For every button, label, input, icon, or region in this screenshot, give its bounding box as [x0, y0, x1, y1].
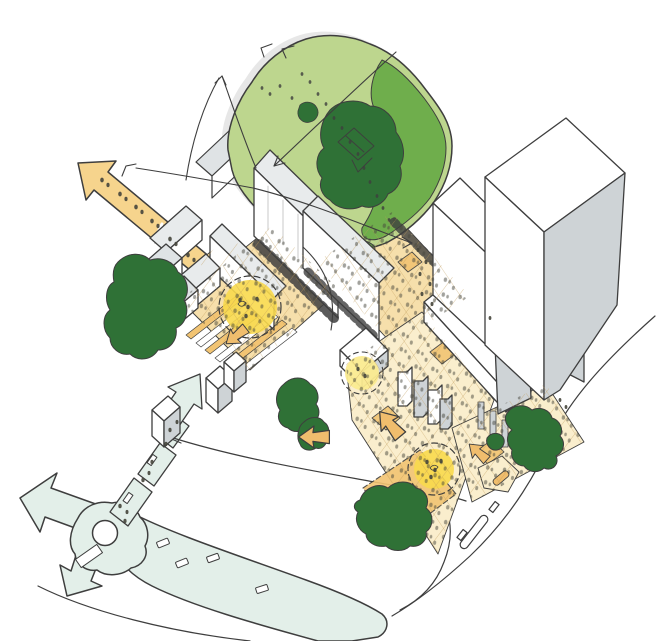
leaf-dot: [349, 140, 352, 144]
person-dot: [100, 178, 104, 183]
person-dot: [123, 519, 126, 523]
roundabout-island: [93, 521, 118, 546]
person-dot: [148, 471, 151, 475]
pedestrian-route: [110, 374, 202, 526]
sketch-root: [20, 32, 655, 641]
person-dot: [118, 192, 122, 197]
person-dot: [429, 282, 432, 286]
person-dot: [431, 302, 434, 306]
leaf-dot: [369, 180, 372, 184]
person-dot: [134, 205, 138, 210]
person-dot: [126, 510, 129, 514]
person-dot: [255, 297, 258, 302]
hedge-spot: [487, 433, 505, 450]
plaza-tip-bush: [354, 482, 432, 551]
person-dot: [419, 272, 422, 276]
canopy-dark-spot: [298, 102, 318, 122]
person-dot: [164, 442, 167, 446]
leaf-dot: [269, 92, 272, 96]
leaf-dot: [309, 80, 312, 84]
road-band-east: [114, 512, 387, 641]
person-dot: [559, 398, 562, 402]
leaf-dot: [382, 206, 385, 210]
bracket-mark-icon: [122, 164, 136, 176]
person-dot: [429, 475, 432, 480]
person-dot: [174, 242, 177, 246]
person-dot: [425, 460, 428, 465]
street-dash: [489, 502, 499, 513]
leaf-dot: [279, 84, 282, 88]
person-dot: [421, 292, 424, 296]
leaf-dot: [291, 96, 294, 100]
person-dot: [168, 428, 171, 432]
person-dot: [141, 478, 144, 483]
person-dot: [118, 504, 121, 509]
person-dot: [565, 405, 568, 409]
person-dot: [425, 260, 428, 264]
person-dot: [140, 210, 143, 214]
person-dot: [439, 459, 442, 464]
person-dot: [124, 197, 127, 201]
masterplan-sketch: [0, 0, 666, 641]
leaf-dot: [357, 152, 360, 156]
leaf-dot: [325, 102, 328, 106]
canopy-dark-core: [317, 101, 404, 209]
leaf-dot: [301, 72, 304, 76]
leaf-dot: [363, 166, 366, 170]
person-dot: [356, 367, 359, 371]
person-dot: [186, 253, 190, 258]
person-dot: [363, 374, 366, 378]
leaf-dot: [261, 86, 264, 90]
person-dot: [176, 420, 179, 424]
person-dot: [417, 248, 420, 252]
person-dot: [244, 314, 247, 319]
sketch-canvas: [0, 0, 666, 641]
person-dot: [168, 237, 172, 242]
person-dot: [150, 219, 154, 224]
person-dot: [489, 316, 492, 320]
person-dot: [150, 460, 153, 464]
person-dot: [192, 258, 195, 262]
person-dot: [106, 183, 109, 187]
leaf-dot: [376, 194, 379, 198]
leaf-dot: [341, 126, 344, 130]
person-dot: [246, 305, 249, 310]
person-dot: [156, 224, 159, 228]
leaf-dot: [317, 92, 320, 96]
west-tree-mass: [104, 254, 187, 359]
leaf-dot: [333, 116, 336, 120]
